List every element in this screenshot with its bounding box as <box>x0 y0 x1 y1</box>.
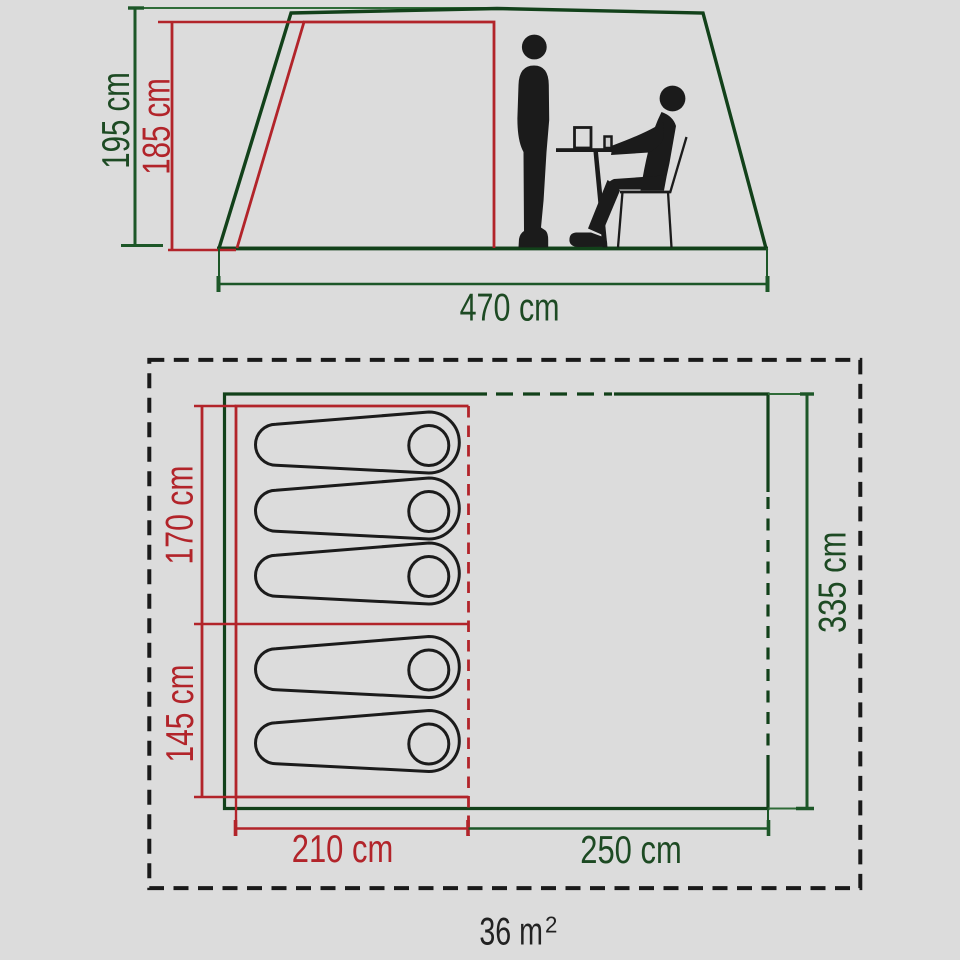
svg-text:195 cm: 195 cm <box>95 72 138 169</box>
svg-text:470 cm: 470 cm <box>460 287 560 330</box>
svg-text:170 cm: 170 cm <box>159 466 202 565</box>
svg-text:36 m: 36 m <box>479 910 543 953</box>
svg-text:145 cm: 145 cm <box>159 665 202 763</box>
svg-text:335 cm: 335 cm <box>812 532 855 634</box>
svg-text:250 cm: 250 cm <box>580 829 682 872</box>
svg-text:185 cm: 185 cm <box>136 78 179 175</box>
svg-text:210 cm: 210 cm <box>292 828 394 871</box>
svg-text:2: 2 <box>545 912 557 938</box>
